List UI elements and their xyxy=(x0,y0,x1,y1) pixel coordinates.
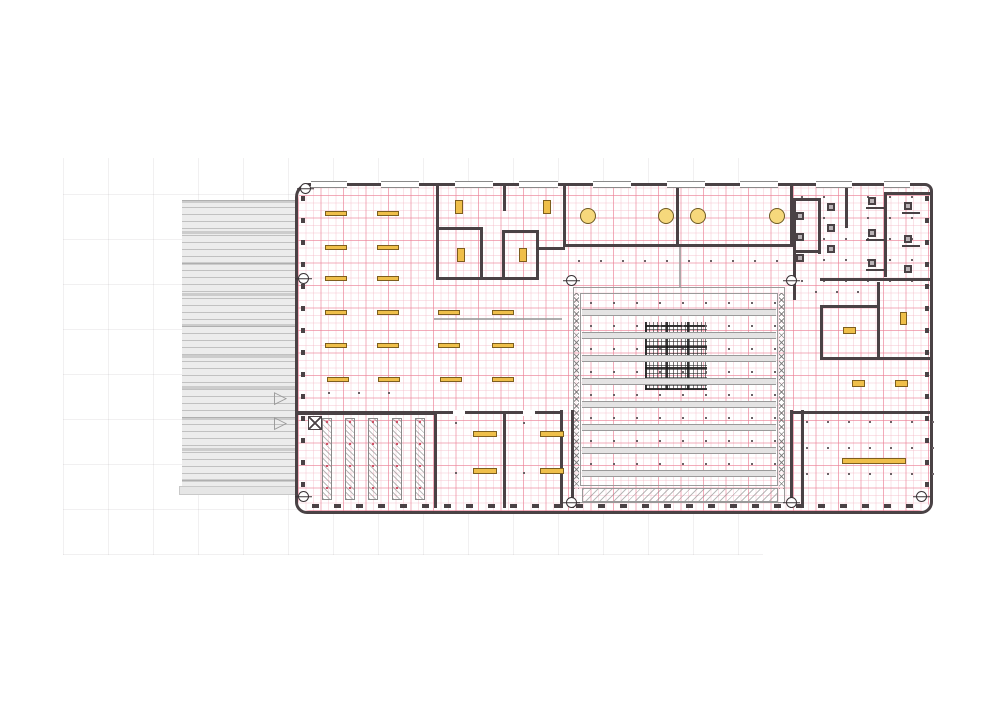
storage-rack-hatch xyxy=(392,418,402,500)
grid-dot xyxy=(890,447,892,449)
desk-table xyxy=(438,310,460,315)
grid-dot xyxy=(751,394,753,396)
grid-dot xyxy=(705,325,707,327)
grid-dot xyxy=(688,260,690,262)
wall-segment xyxy=(845,183,848,228)
desk-table xyxy=(377,245,399,250)
grid-dot xyxy=(705,302,707,304)
grid-dot xyxy=(659,394,661,396)
grid-dot xyxy=(682,348,684,350)
wall-segment xyxy=(436,227,483,230)
door-swing-marker: ▷ xyxy=(274,414,287,431)
grid-dot xyxy=(710,260,712,262)
grid-dot xyxy=(774,440,776,442)
curtainwall-zigzag-right xyxy=(779,293,784,489)
grid-dot xyxy=(774,348,776,350)
grid-dot xyxy=(751,440,753,442)
grid-dot xyxy=(659,348,661,350)
window-segment xyxy=(455,181,493,188)
grid-dot xyxy=(358,392,360,394)
grid-dot xyxy=(590,325,592,327)
grid-dot xyxy=(613,417,615,419)
grid-dot xyxy=(636,463,638,465)
grid-dot xyxy=(911,421,913,423)
grid-dot xyxy=(889,238,891,240)
grid-dot xyxy=(728,371,730,373)
wall-segment xyxy=(536,247,565,250)
courtyard-deck-band xyxy=(582,355,776,362)
grid-dot xyxy=(867,217,869,219)
storage-rack-hatch xyxy=(368,418,378,500)
courtyard-deck-band xyxy=(582,470,776,477)
grid-dot xyxy=(523,472,525,474)
grid-dot xyxy=(823,196,825,198)
toilet-fixture xyxy=(868,259,876,267)
grid-dot xyxy=(801,280,803,282)
steel-column-symbol xyxy=(566,497,577,508)
curtainwall-zigzag-left xyxy=(574,293,579,489)
wall-segment xyxy=(503,413,506,508)
grid-dot xyxy=(848,421,850,423)
window-segment xyxy=(519,181,558,188)
grid-dot xyxy=(857,291,859,293)
grid-dot xyxy=(590,463,592,465)
grid-dot xyxy=(815,291,817,293)
wall-segment xyxy=(818,198,821,254)
storage-rack-hatch xyxy=(345,418,355,500)
desk-table xyxy=(492,310,514,315)
wall-segment xyxy=(563,183,566,247)
grid-dot xyxy=(932,447,934,449)
grid-dot xyxy=(705,440,707,442)
desk-table xyxy=(440,377,462,382)
window-segment xyxy=(381,181,419,188)
grid-dot xyxy=(890,473,892,475)
desk-table xyxy=(325,245,347,250)
grid-dot xyxy=(523,422,525,424)
grid-dot xyxy=(590,394,592,396)
toilet-fixture xyxy=(904,202,912,210)
grid-dot xyxy=(455,422,457,424)
desk-table xyxy=(900,312,907,325)
grid-dot xyxy=(932,421,934,423)
window-segment xyxy=(816,181,852,188)
grid-dot xyxy=(848,473,850,475)
courtyard-deck-band xyxy=(582,447,776,454)
desk-table xyxy=(457,248,465,262)
grid-dot xyxy=(590,440,592,442)
grid-dot xyxy=(613,348,615,350)
wall-segment xyxy=(502,230,539,233)
grid-dot xyxy=(328,392,330,394)
grid-dot xyxy=(869,447,871,449)
door-opening xyxy=(453,410,465,416)
grid-dot xyxy=(848,447,850,449)
page-canvas: ▷▷ xyxy=(0,0,1000,706)
grid-dot xyxy=(728,417,730,419)
wall-segment xyxy=(563,244,793,247)
grid-dot xyxy=(890,421,892,423)
steel-column-symbol xyxy=(786,497,797,508)
grid-dot xyxy=(682,417,684,419)
grid-dot xyxy=(705,417,707,419)
wall-segment xyxy=(297,411,437,415)
round-table xyxy=(580,208,596,224)
grid-dot xyxy=(682,371,684,373)
grid-dot xyxy=(728,440,730,442)
toilet-fixture xyxy=(796,212,804,220)
grid-dot xyxy=(911,217,913,219)
wall-segment xyxy=(866,207,884,209)
partition-light xyxy=(434,318,562,320)
grid-dot xyxy=(774,463,776,465)
wall-segment xyxy=(503,183,506,211)
toilet-fixture xyxy=(904,235,912,243)
grid-dot xyxy=(659,302,661,304)
grid-dot xyxy=(911,196,913,198)
steel-column-symbol xyxy=(298,273,309,284)
toilet-fixture xyxy=(827,245,835,253)
grid-dot xyxy=(705,394,707,396)
grid-dot xyxy=(613,394,615,396)
toilet-fixture xyxy=(827,203,835,211)
wall-segment xyxy=(436,185,439,280)
desk-table xyxy=(852,380,865,387)
courtyard-deck-band xyxy=(582,378,776,385)
grid-dot xyxy=(613,440,615,442)
grid-dot xyxy=(578,260,580,262)
grid-dot xyxy=(754,260,756,262)
desk-table xyxy=(377,343,399,348)
grid-dot xyxy=(823,259,825,261)
grid-dot xyxy=(732,260,734,262)
round-table xyxy=(658,208,674,224)
window-segment xyxy=(593,181,631,188)
grid-dot xyxy=(659,463,661,465)
desk-table xyxy=(438,343,460,348)
desk-table xyxy=(327,377,349,382)
desk-table xyxy=(325,310,347,315)
grid-dot xyxy=(728,325,730,327)
grid-dot xyxy=(751,302,753,304)
wall-segment xyxy=(866,239,884,241)
desk-table xyxy=(325,211,347,216)
grid-dot xyxy=(659,371,661,373)
grid-dot xyxy=(613,302,615,304)
grid-dot xyxy=(911,447,913,449)
round-table xyxy=(690,208,706,224)
grid-dot xyxy=(836,291,838,293)
grid-dot xyxy=(751,371,753,373)
steel-column-symbol xyxy=(298,491,309,502)
window-segment xyxy=(884,181,910,188)
door-opening xyxy=(523,410,535,416)
courtyard-deck-band xyxy=(582,332,776,339)
grid-dot xyxy=(751,417,753,419)
grid-dot xyxy=(728,394,730,396)
desk-table xyxy=(325,276,347,281)
grid-dot xyxy=(823,217,825,219)
courtyard-hatch-strip xyxy=(582,488,778,502)
grid-dot xyxy=(622,260,624,262)
round-table xyxy=(769,208,785,224)
wall-segment xyxy=(434,411,437,508)
grid-dot xyxy=(388,392,390,394)
grid-dot xyxy=(600,260,602,262)
grid-dot xyxy=(728,302,730,304)
wall-segment xyxy=(866,269,884,271)
desk-table xyxy=(455,200,463,214)
grid-dot xyxy=(613,371,615,373)
grid-dot xyxy=(869,421,871,423)
grid-dot xyxy=(827,447,829,449)
grid-dot xyxy=(705,371,707,373)
grid-dot xyxy=(613,463,615,465)
steel-column-symbol xyxy=(300,183,311,194)
grid-dot xyxy=(751,348,753,350)
grid-dot xyxy=(728,463,730,465)
toilet-fixture xyxy=(904,265,912,273)
partition-light xyxy=(679,246,681,287)
desk-table xyxy=(377,310,399,315)
wall-segment xyxy=(884,192,932,195)
grid-dot xyxy=(845,259,847,261)
grid-dot xyxy=(636,417,638,419)
grid-dot xyxy=(636,325,638,327)
grid-dot xyxy=(636,302,638,304)
toilet-fixture xyxy=(796,254,804,262)
grid-dot xyxy=(774,417,776,419)
grid-dot xyxy=(889,196,891,198)
grid-dot xyxy=(806,421,808,423)
grid-dot xyxy=(823,238,825,240)
equipment-box-x xyxy=(308,416,322,430)
grid-dot xyxy=(806,447,808,449)
wall-segment xyxy=(560,410,563,508)
grid-dot xyxy=(682,394,684,396)
grid-dot xyxy=(774,371,776,373)
toilet-fixture xyxy=(868,229,876,237)
desk-table xyxy=(377,276,399,281)
storage-rack-hatch xyxy=(322,418,332,500)
grid-dot xyxy=(644,260,646,262)
grid-dot xyxy=(827,473,829,475)
desk-table xyxy=(540,431,564,437)
wall-segment xyxy=(884,192,887,277)
grid-dot xyxy=(659,417,661,419)
grid-dot xyxy=(659,325,661,327)
grid-dot xyxy=(889,217,891,219)
desk-table xyxy=(377,211,399,216)
wall-segment xyxy=(436,277,539,280)
grid-dot xyxy=(774,325,776,327)
wall-segment xyxy=(902,245,920,247)
steel-column-symbol xyxy=(916,491,927,502)
grid-dot xyxy=(751,463,753,465)
window-segment xyxy=(667,181,705,188)
grid-dot xyxy=(636,440,638,442)
wall-segment xyxy=(502,232,505,280)
wall-segment xyxy=(676,183,679,247)
wall-segment xyxy=(902,212,920,214)
grid-dot xyxy=(636,394,638,396)
desk-table xyxy=(473,468,497,474)
wall-segment xyxy=(793,411,933,414)
grid-dot xyxy=(682,463,684,465)
toilet-fixture xyxy=(868,197,876,205)
grid-dot xyxy=(455,472,457,474)
grid-dot xyxy=(613,325,615,327)
courtyard-deck-band xyxy=(582,424,776,431)
toilet-fixture xyxy=(796,233,804,241)
desk-table xyxy=(325,343,347,348)
wall-segment xyxy=(801,410,804,508)
wall-segment xyxy=(480,227,483,280)
desk-table xyxy=(842,458,906,464)
wall-segment xyxy=(790,410,793,508)
storage-rack-hatch xyxy=(415,418,425,500)
wall-segment xyxy=(820,305,823,360)
grid-dot xyxy=(806,473,808,475)
wall-segment xyxy=(793,198,821,201)
wall-segment xyxy=(571,410,574,508)
courtyard-deck-band xyxy=(582,401,776,408)
grid-dot xyxy=(911,259,913,261)
window-segment xyxy=(311,181,347,188)
grid-dot xyxy=(590,417,592,419)
wall-segment xyxy=(820,305,878,308)
plan-elements-layer: ▷▷ xyxy=(0,0,1000,706)
grid-dot xyxy=(932,473,934,475)
window-segment xyxy=(740,181,778,188)
desk-table xyxy=(540,468,564,474)
grid-dot xyxy=(590,348,592,350)
grid-dot xyxy=(659,440,661,442)
grid-dot xyxy=(705,348,707,350)
grid-dot xyxy=(751,325,753,327)
desk-table xyxy=(543,200,551,214)
grid-dot xyxy=(869,473,871,475)
grid-dot xyxy=(705,463,707,465)
desk-table xyxy=(519,248,527,262)
desk-table xyxy=(843,327,856,334)
grid-dot xyxy=(590,371,592,373)
wall-segment xyxy=(820,357,933,360)
grid-dot xyxy=(774,394,776,396)
steel-column-symbol xyxy=(786,275,797,286)
grid-dot xyxy=(728,348,730,350)
steel-column-symbol xyxy=(566,275,577,286)
grid-dot xyxy=(682,302,684,304)
wall-segment xyxy=(536,232,539,278)
desk-table xyxy=(492,343,514,348)
wall-segment xyxy=(877,282,880,360)
desk-table xyxy=(473,431,497,437)
door-swing-marker: ▷ xyxy=(274,389,287,406)
grid-dot xyxy=(911,473,913,475)
grid-dot xyxy=(590,302,592,304)
grid-dot xyxy=(636,348,638,350)
grid-dot xyxy=(776,260,778,262)
courtyard-deck-band xyxy=(582,309,776,316)
grid-dot xyxy=(636,371,638,373)
toilet-fixture xyxy=(827,224,835,232)
grid-dot xyxy=(889,259,891,261)
wall-segment xyxy=(793,250,821,253)
desk-table xyxy=(492,377,514,382)
grid-dot xyxy=(774,302,776,304)
grid-dot xyxy=(682,440,684,442)
grid-dot xyxy=(845,238,847,240)
grid-dot xyxy=(827,421,829,423)
desk-table xyxy=(895,380,908,387)
desk-table xyxy=(378,377,400,382)
grid-dot xyxy=(682,325,684,327)
wall-segment xyxy=(820,278,933,281)
grid-dot xyxy=(666,260,668,262)
